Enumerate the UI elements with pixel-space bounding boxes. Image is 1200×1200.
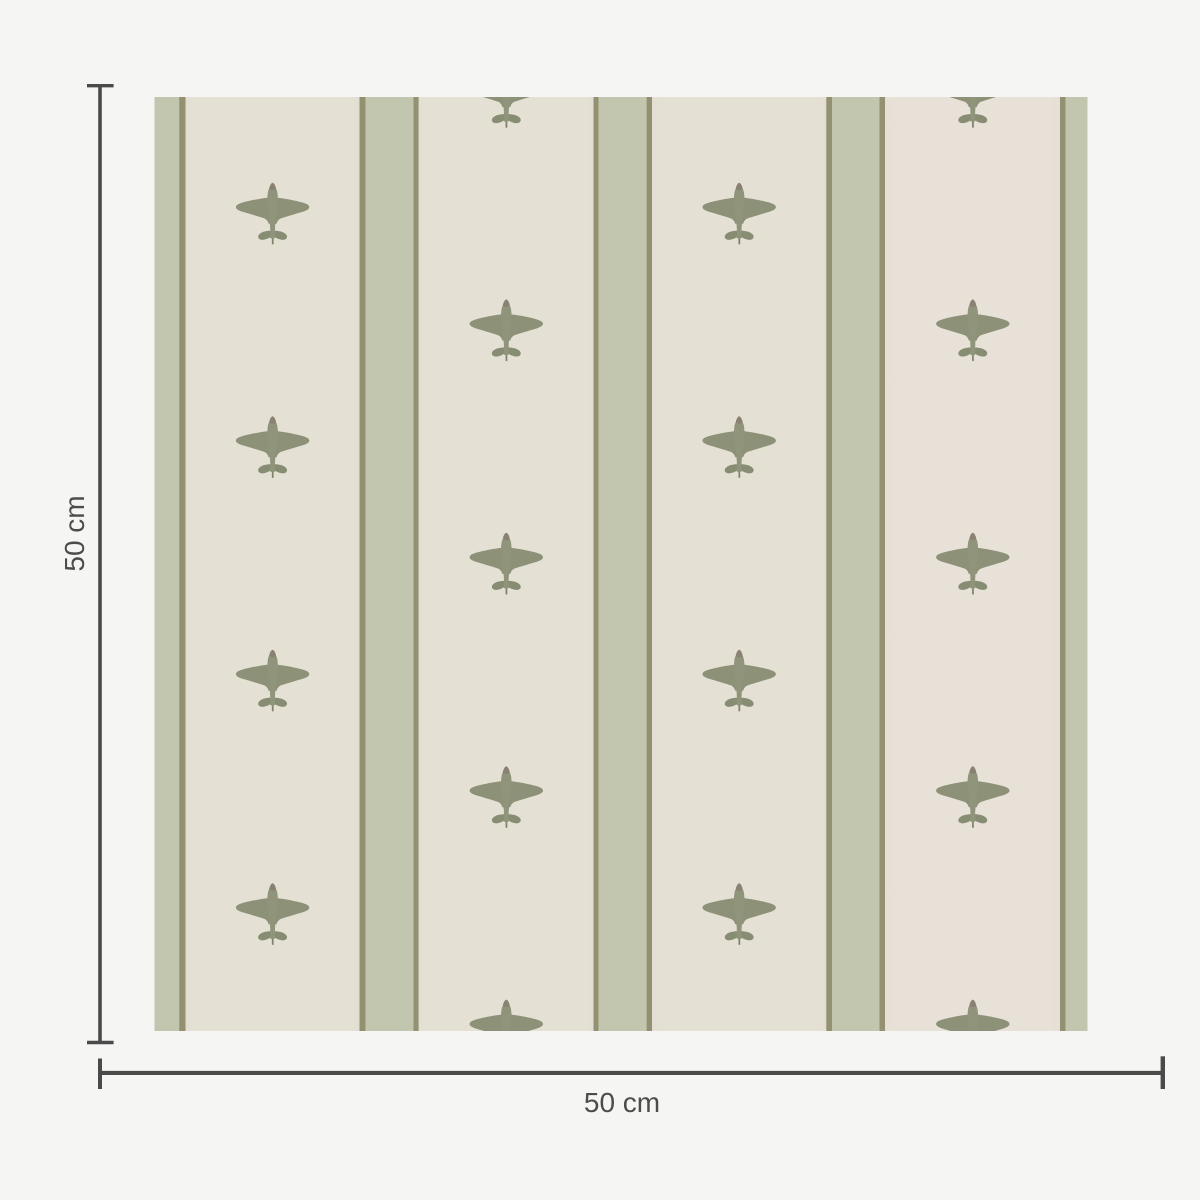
svg-text:50 cm: 50 cm: [59, 495, 90, 571]
svg-text:50 cm: 50 cm: [584, 1087, 660, 1118]
